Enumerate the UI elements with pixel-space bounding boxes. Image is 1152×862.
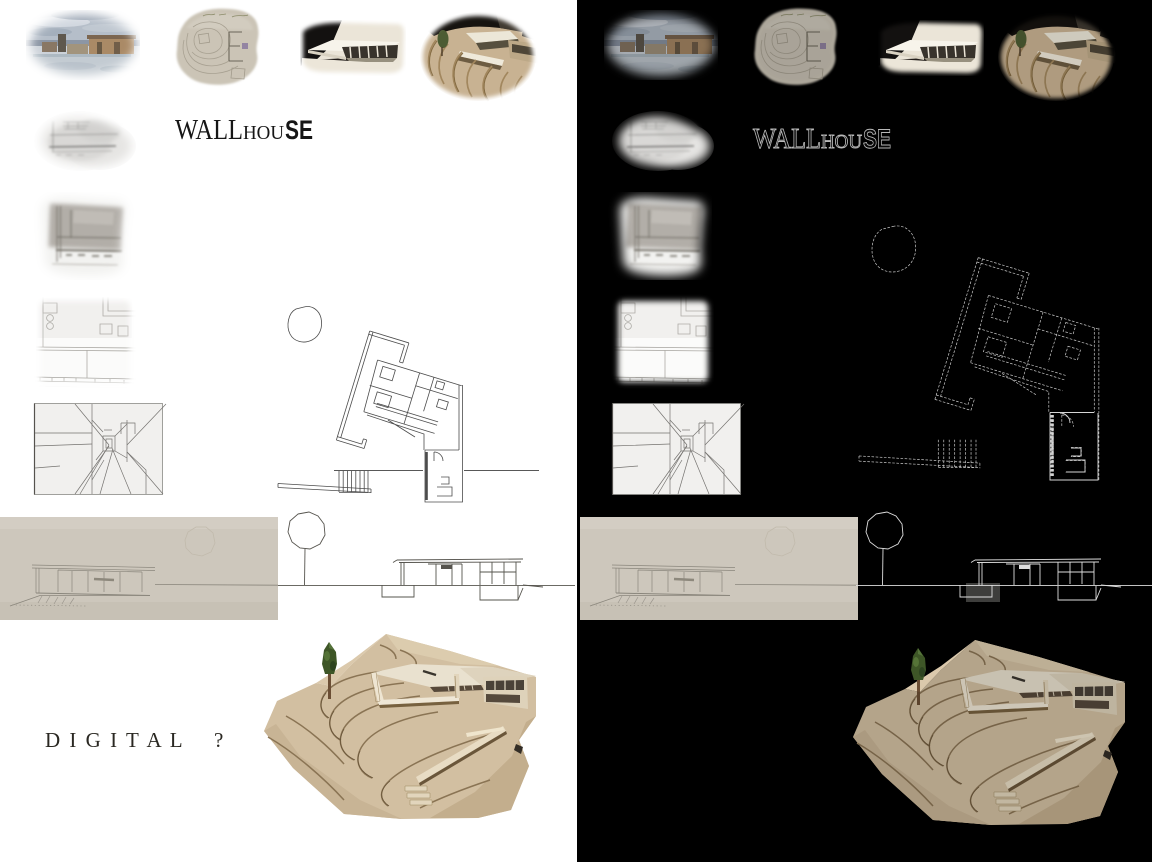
svg-text:D I G I T A L: D I G I T A L xyxy=(45,728,185,752)
svg-text:?: ? xyxy=(214,728,223,752)
